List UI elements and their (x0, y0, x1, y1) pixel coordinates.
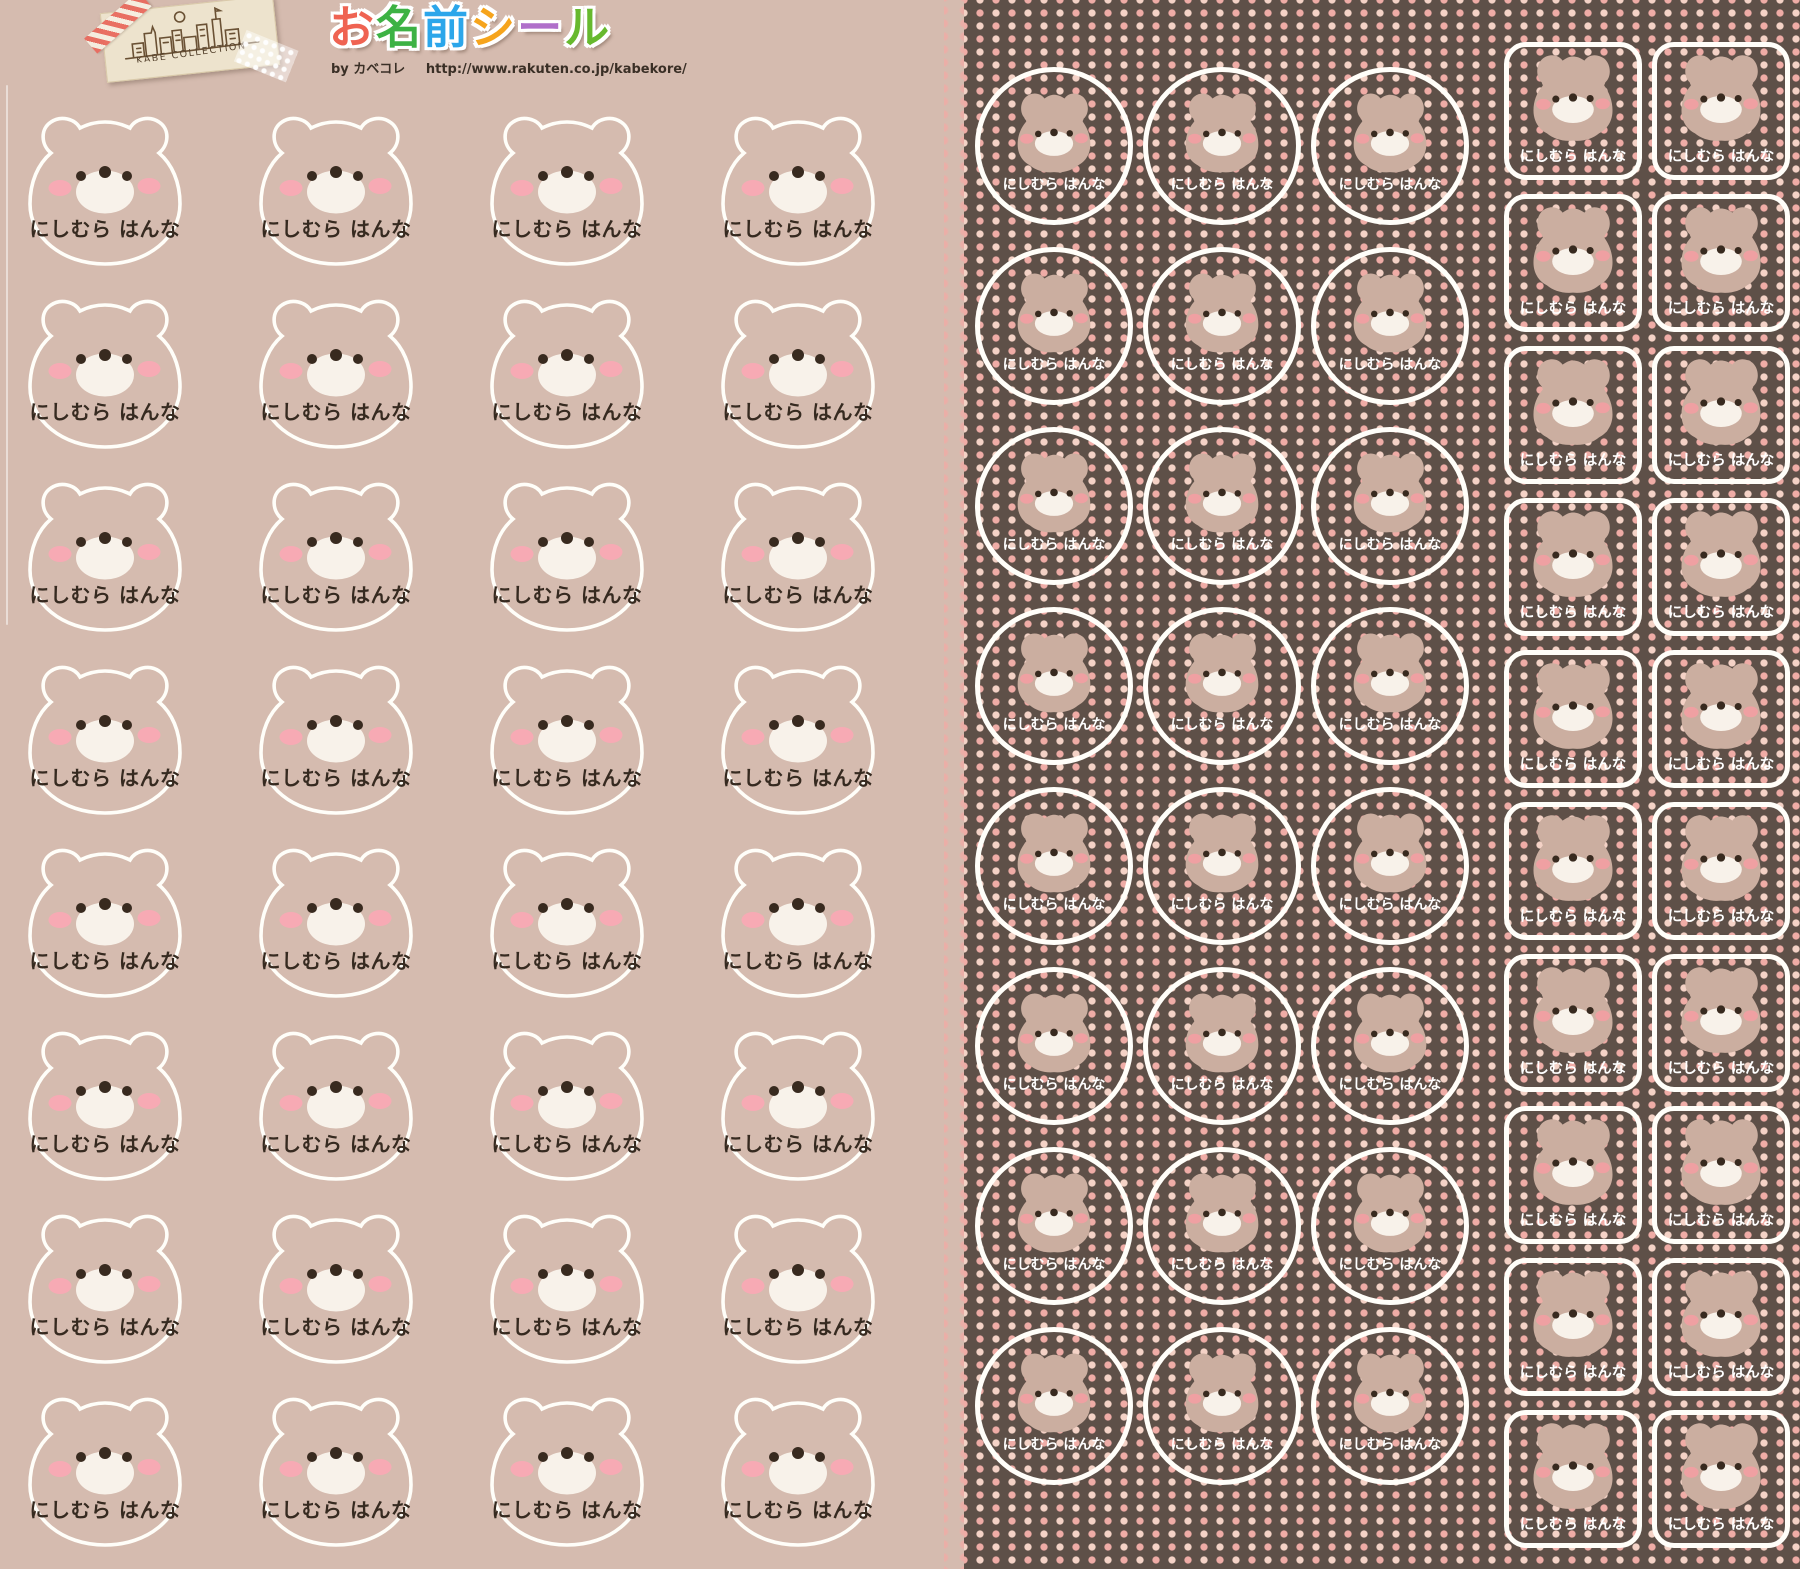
bear-cheek-right (1595, 98, 1610, 109)
sticker-name-text: にしむら はんな (15, 1128, 195, 1157)
bear-head-outline-graphic (15, 1027, 195, 1187)
bear-eye-right (815, 1086, 825, 1096)
bear-eye-left (1035, 131, 1042, 138)
sticker-name-text: にしむら はんな (15, 1311, 195, 1340)
bear-cheek-left (1536, 1011, 1551, 1022)
bear-eye-left (1035, 311, 1042, 318)
name-sticker-circle: にしむら はんな (1143, 247, 1301, 405)
bear-face-graphic (1669, 353, 1773, 449)
bear-cheek-right (138, 727, 161, 743)
bear-eye-right (1235, 310, 1242, 317)
bear-cheek-right (369, 1093, 392, 1109)
bear-eye-left (1035, 491, 1042, 498)
sticker-name-text: にしむら はんな (1509, 1057, 1637, 1078)
bear-cheek-right (1595, 1466, 1610, 1477)
bear-cheek-right (138, 544, 161, 560)
page-title: お名前シール (328, 2, 610, 54)
bear-eye-left (307, 1269, 317, 1279)
bear-cheek-right (1743, 1162, 1758, 1173)
bear-cheek-right (831, 910, 854, 926)
bear-eye-left (1700, 552, 1707, 559)
bear-face-graphic (1669, 1113, 1773, 1209)
bear-cheek-left (511, 180, 534, 196)
bear-cheek-left (1684, 707, 1699, 718)
bear-cheek-right (138, 1276, 161, 1292)
bear-eye-left (1371, 851, 1378, 858)
name-sticker-bear-head: にしむら はんな (477, 661, 657, 821)
bear-cheek-right (1743, 858, 1758, 869)
right-sheet: にしむら はんな にしむら はんな にしむら はんな (964, 0, 1800, 1569)
bear-cheek-left (1356, 314, 1369, 324)
bear-cheek-left (1356, 1034, 1369, 1044)
bear-cheek-left (1020, 1034, 1033, 1044)
name-sticker-circle: にしむら はんな (975, 607, 1133, 765)
name-sticker-square: にしむら はんな (1504, 650, 1642, 788)
bear-eye-right (584, 903, 594, 913)
bear-eye-left (1552, 552, 1559, 559)
bear-cheek-left (1020, 1214, 1033, 1224)
sticker-name-text: にしむら はんな (477, 396, 657, 425)
sticker-name-text: にしむら はんな (1316, 174, 1464, 194)
sticker-name-text: にしむら はんな (1148, 1434, 1296, 1454)
bear-cheek-left (1020, 314, 1033, 324)
sticker-name-text: にしむら はんな (708, 1128, 888, 1157)
name-sticker-bear-head: にしむら はんな (708, 661, 888, 821)
bear-cheek-left (1684, 859, 1699, 870)
bear-cheek-right (600, 1459, 623, 1475)
sticker-name-text: にしむら はんな (1509, 753, 1637, 774)
bear-cheek-right (1243, 313, 1256, 323)
sticker-name-text: にしむら はんな (708, 213, 888, 242)
bear-eye-right (353, 537, 363, 547)
bear-eye-right (1587, 399, 1594, 406)
bear-eye-left (1371, 311, 1378, 318)
name-sticker-square: にしむら はんな (1652, 1258, 1790, 1396)
bear-cheek-left (280, 180, 303, 196)
bear-nose (1717, 245, 1725, 253)
bear-eye-left (1035, 1211, 1042, 1218)
bear-eye-left (1700, 1312, 1707, 1319)
bear-eye-right (1403, 1390, 1410, 1397)
bear-eye-right (1235, 1210, 1242, 1217)
bear-eye-right (1235, 670, 1242, 677)
sticker-name-text: にしむら はんな (1657, 1361, 1785, 1382)
bear-cheek-right (1595, 1314, 1610, 1325)
bear-cheek-right (369, 1276, 392, 1292)
bear-face-graphic (1669, 1265, 1773, 1361)
bear-eye-left (307, 720, 317, 730)
bear-cheek-left (49, 729, 72, 745)
bear-head-outline-graphic (477, 112, 657, 272)
bear-face-graphic (1342, 1348, 1438, 1436)
bear-eye-right (1587, 247, 1594, 254)
bear-face-graphic (1521, 657, 1625, 753)
bear-face-graphic (1521, 809, 1625, 905)
bear-cheek-right (138, 178, 161, 194)
bear-nose (1218, 1209, 1226, 1217)
subtitle: by カベコレ http://www.rakuten.co.jp/kabekor… (331, 58, 687, 77)
bear-nose (1717, 397, 1725, 405)
bear-face-graphic (1006, 1348, 1102, 1436)
sticker-name-text: にしむら はんな (1316, 354, 1464, 374)
bear-nose (1218, 129, 1226, 137)
bear-nose (792, 715, 804, 727)
bear-face-graphic (1342, 88, 1438, 176)
bear-eye-right (1067, 670, 1074, 677)
bear-nose (1050, 849, 1058, 857)
bear-eye-left (1203, 1031, 1210, 1038)
bear-face-graphic (1342, 448, 1438, 536)
bear-eye-left (769, 903, 779, 913)
bear-nose (1717, 1309, 1725, 1317)
bear-nose (1386, 1209, 1394, 1217)
name-sticker-circle: にしむら はんな (975, 787, 1133, 945)
bear-eye-right (1587, 703, 1594, 710)
bear-head-outline-graphic (15, 295, 195, 455)
bear-cheek-right (831, 1093, 854, 1109)
bear-cheek-left (511, 729, 534, 745)
bear-eye-left (76, 720, 86, 730)
bear-cheek-left (511, 912, 534, 928)
bear-face-graphic (1521, 201, 1625, 297)
bear-cheek-left (1536, 251, 1551, 262)
bear-cheek-left (280, 1095, 303, 1111)
name-sticker-bear-head: にしむら はんな (246, 478, 426, 638)
bear-cheek-right (369, 544, 392, 560)
bear-eye-left (538, 720, 548, 730)
name-sticker-bear-head: にしむら はんな (15, 1210, 195, 1370)
sticker-name-text: にしむら はんな (246, 213, 426, 242)
bear-cheek-right (1411, 1213, 1424, 1223)
bear-eye-right (1735, 1311, 1742, 1318)
bear-cheek-right (1243, 853, 1256, 863)
bear-eye-right (1403, 670, 1410, 677)
bear-cheek-right (831, 544, 854, 560)
name-sticker-bear-head: にしむら はんな (477, 295, 657, 455)
bear-cheek-right (1595, 554, 1610, 565)
bear-head-outline-graphic (477, 295, 657, 455)
bear-nose (792, 532, 804, 544)
bear-cheek-left (280, 912, 303, 928)
bear-eye-left (1035, 851, 1042, 858)
bear-nose (1717, 1461, 1725, 1469)
bear-cheek-left (1684, 1163, 1699, 1174)
bear-eye-left (1371, 131, 1378, 138)
bear-nose (1569, 1461, 1577, 1469)
bear-eye-right (1735, 1463, 1742, 1470)
bear-eye-left (1203, 131, 1210, 138)
name-sticker-bear-head: にしむら はんな (15, 1393, 195, 1553)
bear-nose (1386, 129, 1394, 137)
bear-eye-right (1735, 399, 1742, 406)
title-char: ー (516, 2, 563, 54)
name-sticker-circle: にしむら はんな (1143, 67, 1301, 225)
bear-cheek-left (511, 1278, 534, 1294)
bear-eye-right (1235, 130, 1242, 137)
bear-cheek-right (1743, 98, 1758, 109)
name-sticker-bear-head: にしむら はんな (246, 1393, 426, 1553)
name-sticker-bear-head: にしむら はんな (246, 295, 426, 455)
bear-nose (1218, 1389, 1226, 1397)
sticker-name-text: にしむら はんな (15, 579, 195, 608)
name-sticker-square: にしむら はんな (1652, 346, 1790, 484)
sticker-name-text: にしむら はんな (246, 1494, 426, 1523)
bear-cheek-right (831, 361, 854, 377)
bear-face-graphic (1174, 448, 1270, 536)
bear-cheek-right (1595, 1162, 1610, 1173)
bear-eye-right (1587, 1311, 1594, 1318)
bear-cheek-right (1075, 1393, 1088, 1403)
sticker-name-text: にしむら はんな (980, 1434, 1128, 1454)
bear-cheek-right (1075, 493, 1088, 503)
bear-face-graphic (1342, 268, 1438, 356)
bear-eye-left (307, 1086, 317, 1096)
name-sticker-bear-head: にしむら はんな (15, 1027, 195, 1187)
bear-eye-right (584, 1086, 594, 1096)
sticker-name-text: にしむら はんな (15, 213, 195, 242)
name-sticker-bear-head: にしむら はんな (246, 1027, 426, 1187)
bear-nose (330, 166, 342, 178)
bear-cheek-right (1595, 250, 1610, 261)
sticker-name-text: にしむら はんな (1657, 1209, 1785, 1230)
bear-nose (792, 1447, 804, 1459)
bear-cheek-right (369, 727, 392, 743)
bear-cheek-right (369, 361, 392, 377)
sticker-name-text: にしむら はんな (15, 762, 195, 791)
bear-cheek-right (138, 1459, 161, 1475)
sticker-name-text: にしむら はんな (246, 945, 426, 974)
name-sticker-circle: にしむら はんな (975, 67, 1133, 225)
logo-brand-text: KABE COLLECTION (136, 40, 248, 65)
bear-eye-left (1371, 1391, 1378, 1398)
sticker-name-text: にしむら はんな (1148, 174, 1296, 194)
bear-nose (1569, 549, 1577, 557)
bear-eye-right (1587, 551, 1594, 558)
name-sticker-bear-head: にしむら はんな (477, 112, 657, 272)
bear-nose (1386, 309, 1394, 317)
bear-nose (99, 1081, 111, 1093)
bear-cheek-right (600, 1276, 623, 1292)
bear-eye-right (1735, 1007, 1742, 1014)
bear-cheek-right (1595, 706, 1610, 717)
left-sheet: KABE COLLECTION お名前シール by カベコレ http://ww… (0, 0, 964, 1569)
bear-cheek-left (1188, 674, 1201, 684)
bear-cheek-left (1684, 1315, 1699, 1326)
bear-eye-left (538, 1269, 548, 1279)
name-sticker-circle: にしむら はんな (1311, 67, 1469, 225)
bear-eye-right (815, 354, 825, 364)
bear-eye-right (584, 354, 594, 364)
name-sticker-circle: にしむら はんな (1311, 1327, 1469, 1485)
bear-face-graphic (1174, 808, 1270, 896)
bear-head-outline-graphic (708, 478, 888, 638)
name-sticker-bear-head: にしむら はんな (246, 112, 426, 272)
name-sticker-square: にしむら はんな (1652, 954, 1790, 1092)
bear-cheek-left (1536, 1315, 1551, 1326)
sticker-name-text: にしむら はんな (1316, 1254, 1464, 1274)
bear-cheek-left (1188, 1214, 1201, 1224)
bear-cheek-left (49, 1095, 72, 1111)
sticker-name-text: にしむら はんな (1509, 905, 1637, 926)
bear-cheek-left (742, 180, 765, 196)
name-sticker-bear-head: にしむら はんな (708, 1027, 888, 1187)
bear-cheek-right (1743, 1010, 1758, 1021)
bear-eye-right (1235, 1390, 1242, 1397)
bear-eye-right (353, 1452, 363, 1462)
bear-face-graphic (1669, 1417, 1773, 1513)
bear-cheek-left (280, 729, 303, 745)
sticker-name-text: にしむら はんな (1657, 449, 1785, 470)
bear-cheek-left (511, 363, 534, 379)
bear-eye-right (122, 1269, 132, 1279)
bear-nose (1569, 1005, 1577, 1013)
bear-eye-right (353, 903, 363, 913)
bear-eye-right (1735, 855, 1742, 862)
bear-eye-right (353, 354, 363, 364)
bear-cheek-left (511, 546, 534, 562)
bear-nose (1717, 1157, 1725, 1165)
bear-nose (1218, 489, 1226, 497)
bear-eye-left (1035, 671, 1042, 678)
name-sticker-square: にしむら はんな (1504, 954, 1642, 1092)
bear-eye-left (538, 1452, 548, 1462)
sticker-name-text: にしむら はんな (1657, 1057, 1785, 1078)
bear-cheek-left (49, 363, 72, 379)
bear-eye-right (815, 720, 825, 730)
bear-head-outline-graphic (15, 478, 195, 638)
bear-head-outline-graphic (246, 1210, 426, 1370)
bear-head-outline-graphic (477, 661, 657, 821)
bear-cheek-right (1411, 133, 1424, 143)
bear-head-outline-graphic (708, 1393, 888, 1553)
sticker-name-text: にしむら はんな (1509, 601, 1637, 622)
name-sticker-bear-head: にしむら はんな (708, 295, 888, 455)
bear-nose (1218, 849, 1226, 857)
sticker-name-text: にしむら はんな (708, 396, 888, 425)
sticker-name-text: にしむら はんな (477, 945, 657, 974)
sticker-name-text: にしむら はんな (1148, 534, 1296, 554)
bear-cheek-right (1411, 493, 1424, 503)
transition-dot-strip (944, 0, 964, 1569)
bear-cheek-left (742, 1278, 765, 1294)
name-sticker-square: にしむら はんな (1652, 194, 1790, 332)
name-sticker-square: にしむら はんな (1504, 1106, 1642, 1244)
sticker-name-text: にしむら はんな (477, 1494, 657, 1523)
bear-face-graphic (1669, 49, 1773, 145)
bear-eye-left (307, 1452, 317, 1462)
sticker-sheet: KABE COLLECTION お名前シール by カベコレ http://ww… (0, 0, 1800, 1569)
bear-head-outline-graphic (477, 1393, 657, 1553)
sticker-name-text: にしむら はんな (1657, 297, 1785, 318)
bear-eye-left (1700, 856, 1707, 863)
bear-cheek-right (1075, 1213, 1088, 1223)
sticker-name-text: にしむら はんな (708, 762, 888, 791)
sticker-name-text: にしむら はんな (708, 945, 888, 974)
bear-face-graphic (1006, 628, 1102, 716)
bear-nose (1050, 1029, 1058, 1037)
sticker-name-text: にしむら はんな (1316, 894, 1464, 914)
bear-face-graphic (1669, 505, 1773, 601)
name-sticker-circle: にしむら はんな (975, 967, 1133, 1125)
bear-nose (1569, 853, 1577, 861)
bear-head-outline-graphic (246, 1027, 426, 1187)
sticker-name-text: にしむら はんな (980, 354, 1128, 374)
sheet-cut-line (6, 85, 8, 625)
bear-eye-right (584, 537, 594, 547)
bear-cheek-right (600, 910, 623, 926)
bear-head-outline-graphic (708, 295, 888, 455)
bear-eye-left (76, 354, 86, 364)
bear-cheek-right (1743, 706, 1758, 717)
bear-eye-right (1587, 1463, 1594, 1470)
bear-cheek-left (742, 912, 765, 928)
sticker-name-text: にしむら はんな (1316, 534, 1464, 554)
bear-cheek-left (1536, 859, 1551, 870)
bear-eye-left (1552, 400, 1559, 407)
bear-cheek-left (1684, 555, 1699, 566)
bear-eye-left (769, 537, 779, 547)
sticker-name-text: にしむら はんな (246, 762, 426, 791)
bear-face-graphic (1006, 448, 1102, 536)
bear-eye-right (815, 1452, 825, 1462)
bear-head-outline-graphic (246, 478, 426, 638)
name-sticker-bear-head: にしむら はんな (246, 661, 426, 821)
sticker-name-text: にしむら はんな (1657, 905, 1785, 926)
bear-eye-right (122, 1452, 132, 1462)
bear-eye-left (76, 903, 86, 913)
sticker-name-text: にしむら はんな (1657, 753, 1785, 774)
bear-cheek-left (1536, 403, 1551, 414)
title-char: お (328, 2, 375, 54)
name-sticker-bear-head: にしむら はんな (477, 1393, 657, 1553)
bear-eye-left (1203, 1391, 1210, 1398)
bear-eye-left (769, 354, 779, 364)
bear-eye-left (538, 354, 548, 364)
sticker-name-text: にしむら はんな (1509, 297, 1637, 318)
bear-cheek-left (1356, 854, 1369, 864)
name-sticker-square: にしむら はんな (1504, 194, 1642, 332)
bear-cheek-left (1020, 1394, 1033, 1404)
bear-nose (1717, 701, 1725, 709)
bear-eye-right (584, 171, 594, 181)
bear-cheek-left (1020, 854, 1033, 864)
name-sticker-bear-head: にしむら はんな (477, 1210, 657, 1370)
bear-cheek-left (1188, 134, 1201, 144)
bear-eye-left (1552, 1008, 1559, 1015)
bear-nose (1569, 93, 1577, 101)
bear-face-graphic (1342, 1168, 1438, 1256)
bear-head-outline-graphic (15, 112, 195, 272)
bear-eye-left (1552, 704, 1559, 711)
bear-nose (1050, 669, 1058, 677)
bear-cheek-left (280, 546, 303, 562)
bear-face-graphic (1342, 628, 1438, 716)
bear-cheek-right (1075, 673, 1088, 683)
bear-head-sticker-grid: にしむら はんな にしむら はんな にしむら はんな (15, 112, 888, 1553)
bear-nose (1050, 1389, 1058, 1397)
sticker-name-text: にしむら はんな (1657, 1513, 1785, 1534)
bear-face-graphic (1669, 961, 1773, 1057)
sticker-name-text: にしむら はんな (1316, 1434, 1464, 1454)
name-sticker-circle: にしむら はんな (1143, 787, 1301, 945)
bear-eye-left (1203, 851, 1210, 858)
bear-nose (792, 166, 804, 178)
bear-face-graphic (1342, 808, 1438, 896)
name-sticker-circle: にしむら はんな (1311, 1147, 1469, 1305)
bear-eye-left (538, 537, 548, 547)
bear-eye-left (769, 171, 779, 181)
bear-cheek-right (831, 1459, 854, 1475)
